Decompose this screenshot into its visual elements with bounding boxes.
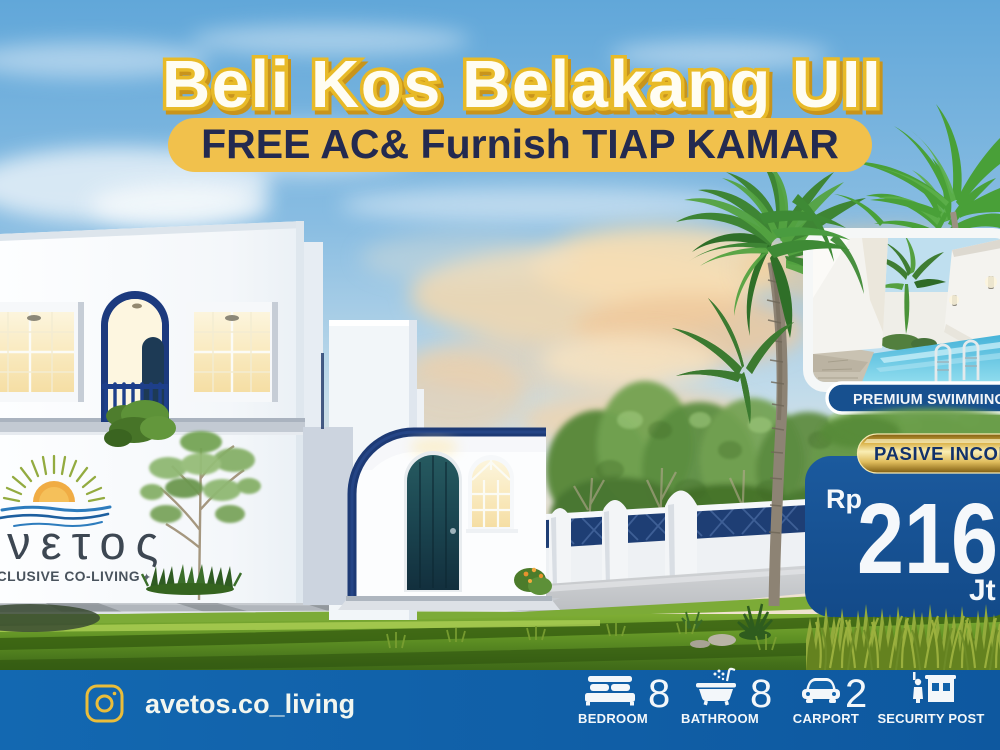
svg-text:2: 2 (845, 672, 867, 716)
svg-text:8: 8 (750, 672, 772, 716)
svg-text:PREMIUM SWIMMING P: PREMIUM SWIMMING P (853, 392, 1000, 408)
svg-text:XCLUSIVE CO-LIVING: XCLUSIVE CO-LIVING (0, 569, 140, 584)
svg-text:PASIVE INCOME: PASIVE INCOME (874, 443, 1000, 464)
svg-text:Jt: Jt (969, 574, 996, 607)
svg-text:8: 8 (648, 672, 670, 716)
svg-text:SECURITY POST: SECURITY POST (877, 711, 984, 726)
svg-text:FREE AC& Furnish TIAP KAMAR: FREE AC& Furnish TIAP KAMAR (201, 121, 839, 167)
svg-text:ανετος: ανετος (0, 516, 168, 569)
svg-text:BATHROOM: BATHROOM (681, 711, 759, 726)
svg-text:avetos.co_living: avetos.co_living (145, 689, 355, 719)
svg-text:CARPORT: CARPORT (793, 711, 859, 726)
svg-text:BEDROOM: BEDROOM (578, 711, 648, 726)
svg-text:Beli Kos Belakang UII: Beli Kos Belakang UII (162, 47, 882, 122)
